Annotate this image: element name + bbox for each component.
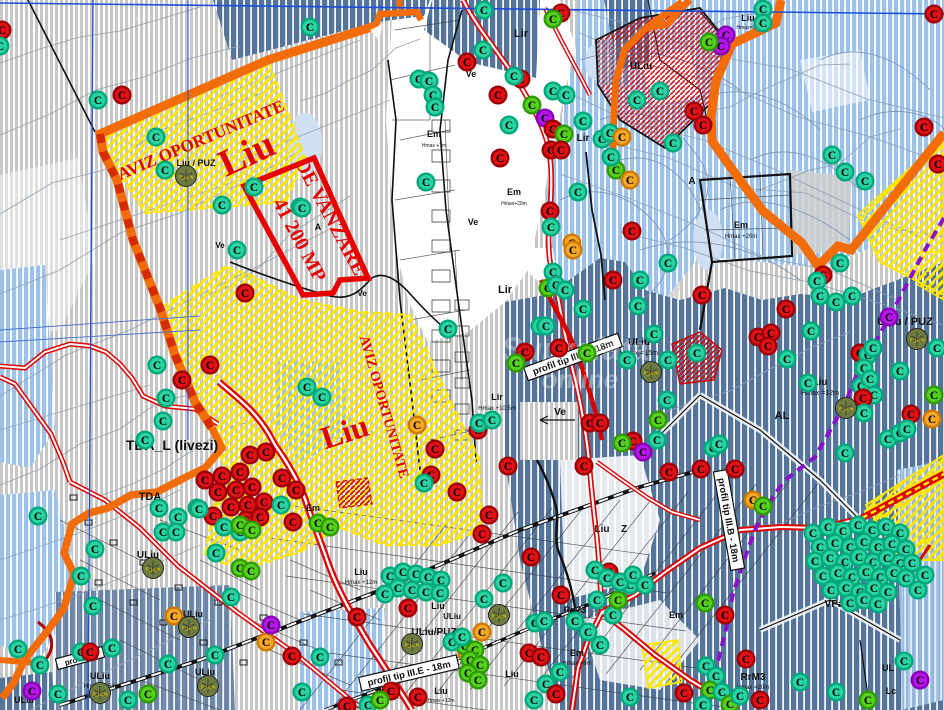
svg-text:C: C — [885, 312, 893, 324]
svg-text:C: C — [152, 132, 160, 144]
svg-text:C: C — [699, 700, 707, 710]
svg-text:C: C — [634, 301, 642, 313]
svg-text:C: C — [431, 444, 439, 456]
svg-text:C: C — [557, 590, 565, 602]
svg-text:C: C — [701, 598, 709, 610]
svg-text:Em: Em — [734, 220, 748, 230]
svg-text:C: C — [289, 517, 297, 529]
svg-text:C: C — [832, 687, 840, 699]
svg-text:C: C — [201, 475, 209, 487]
svg-text:S_ULiu: S_ULiu — [910, 338, 925, 343]
svg-text:C: C — [34, 511, 42, 523]
svg-text:C: C — [742, 654, 750, 666]
svg-text:C: C — [690, 106, 698, 118]
svg-text:C: C — [616, 577, 624, 589]
svg-text:S_ULiu: S_ULiu — [182, 626, 197, 631]
svg-text:Liu: Liu — [505, 669, 519, 679]
svg-text:C: C — [607, 152, 615, 164]
svg-text:C: C — [715, 439, 723, 451]
svg-text:C: C — [831, 538, 839, 550]
svg-text:C: C — [527, 552, 535, 564]
svg-text:C: C — [248, 525, 256, 537]
svg-text:C: C — [431, 102, 439, 114]
svg-text:C: C — [827, 585, 835, 597]
svg-text:C: C — [218, 200, 226, 212]
svg-text:C: C — [0, 41, 4, 53]
svg-text:C: C — [560, 129, 568, 141]
svg-text:C: C — [698, 290, 706, 302]
svg-text:C: C — [896, 366, 904, 378]
svg-text:Hmax +20m: Hmax +20m — [725, 234, 758, 240]
svg-text:C: C — [571, 616, 579, 628]
svg-text:C: C — [609, 275, 617, 287]
svg-text:C: C — [593, 595, 601, 607]
svg-text:C: C — [656, 86, 664, 98]
svg-text:C: C — [557, 145, 565, 157]
svg-text:ULiu: ULiu — [630, 61, 652, 72]
svg-text:C: C — [579, 304, 587, 316]
svg-text:C: C — [584, 627, 592, 639]
svg-text:C: C — [94, 95, 102, 107]
svg-text:C: C — [414, 692, 422, 704]
svg-text:C: C — [848, 291, 856, 303]
svg-text:Lir: Lir — [514, 28, 529, 40]
svg-text:C: C — [77, 571, 85, 583]
svg-text:C: C — [759, 18, 767, 30]
svg-text:C: C — [855, 552, 863, 564]
svg-text:Z: Z — [621, 524, 627, 535]
svg-text:C: C — [596, 640, 604, 652]
svg-text:C: C — [816, 291, 824, 303]
svg-text:C: C — [353, 612, 361, 624]
svg-text:S_ULiu: S_ULiu — [644, 371, 659, 376]
svg-text:C: C — [420, 478, 428, 490]
svg-text:S_ULiu: S_ULiu — [146, 567, 161, 572]
svg-text:Ve: Ve — [357, 289, 367, 298]
svg-text:Em: Em — [427, 129, 441, 139]
svg-text:C: C — [260, 497, 268, 509]
svg-text:C: C — [236, 467, 244, 479]
svg-text:C: C — [900, 656, 908, 668]
svg-text:C: C — [54, 689, 62, 701]
svg-text:C: C — [862, 567, 870, 579]
svg-text:C: C — [807, 326, 815, 338]
svg-text:C: C — [453, 487, 461, 499]
svg-text:C: C — [842, 583, 850, 595]
svg-text:C: C — [463, 57, 471, 69]
svg-text:C: C — [124, 695, 132, 707]
svg-text:C: C — [233, 245, 241, 257]
svg-text:C: C — [826, 553, 834, 565]
svg-text:C: C — [512, 358, 520, 370]
svg-text:C: C — [841, 448, 849, 460]
svg-text:C: C — [316, 652, 324, 664]
svg-text:C: C — [705, 37, 713, 49]
svg-text:C: C — [530, 695, 538, 707]
svg-text:Hmax +?m: Hmax +?m — [422, 143, 446, 149]
svg-text:C: C — [680, 688, 688, 700]
svg-text:C: C — [930, 9, 938, 21]
svg-text:C: C — [141, 435, 149, 447]
svg-text:C: C — [884, 587, 892, 599]
svg-text:C: C — [914, 585, 922, 597]
svg-text:C: C — [494, 90, 502, 102]
svg-text:C: C — [537, 652, 545, 664]
svg-text:C: C — [902, 573, 910, 585]
svg-text:C: C — [903, 424, 911, 436]
svg-text:C: C — [164, 659, 172, 671]
svg-text:C: C — [326, 522, 334, 534]
svg-text:ULiu: ULiu — [90, 671, 110, 681]
svg-text:C: C — [934, 159, 942, 171]
svg-text:C: C — [783, 354, 791, 366]
svg-text:C: C — [89, 601, 97, 613]
svg-text:C: C — [569, 245, 577, 257]
svg-text:C: C — [246, 450, 254, 462]
svg-text:C: C — [628, 226, 636, 238]
svg-text:C: C — [232, 485, 240, 497]
svg-text:C: C — [928, 414, 936, 426]
svg-text:C: C — [250, 182, 258, 194]
svg-text:C: C — [277, 500, 285, 512]
svg-text:C: C — [669, 138, 677, 150]
svg-text:C: C — [399, 567, 407, 579]
svg-text:C: C — [248, 482, 256, 494]
svg-text:C: C — [930, 390, 938, 402]
svg-text:C: C — [650, 329, 658, 341]
svg-text:Liu: Liu — [431, 601, 445, 611]
svg-text:C: C — [479, 45, 487, 57]
svg-text:Lir: Lir — [491, 392, 503, 402]
svg-text:C: C — [288, 651, 296, 663]
svg-text:C: C — [562, 90, 570, 102]
svg-text:C: C — [422, 587, 430, 599]
svg-text:C: C — [623, 355, 631, 367]
svg-text:Ve: Ve — [468, 217, 479, 227]
svg-text:C: C — [574, 187, 582, 199]
svg-text:C: C — [556, 667, 564, 679]
svg-text:C: C — [542, 321, 550, 333]
svg-text:C: C — [874, 599, 882, 611]
svg-text:C: C — [882, 522, 890, 534]
svg-text:C: C — [528, 100, 536, 112]
svg-text:Hmax +10.5m: Hmax +10.5m — [478, 406, 516, 412]
svg-text:A: A — [688, 176, 695, 187]
svg-text:Lc: Lc — [886, 686, 897, 696]
svg-text:C: C — [609, 610, 617, 622]
svg-text:C: C — [36, 660, 44, 672]
svg-text:C: C — [591, 565, 599, 577]
svg-text:C: C — [721, 610, 729, 622]
svg-text:C: C — [859, 393, 867, 405]
svg-text:C: C — [819, 571, 827, 583]
svg-text:C: C — [860, 595, 868, 607]
svg-text:C: C — [665, 467, 673, 479]
svg-text:Ve: Ve — [554, 407, 566, 418]
svg-text:C: C — [654, 415, 662, 427]
svg-text:Lir: Lir — [498, 284, 513, 296]
svg-text:C: C — [267, 620, 275, 632]
svg-text:C: C — [318, 392, 326, 404]
svg-text:C: C — [118, 90, 126, 102]
svg-text:C: C — [699, 120, 707, 132]
svg-text:C: C — [478, 627, 486, 639]
svg-text:C: C — [262, 637, 270, 649]
svg-text:ULiu: ULiu — [443, 612, 461, 621]
svg-text:C: C — [804, 378, 812, 390]
svg-text:C: C — [422, 177, 430, 189]
svg-text:C: C — [480, 594, 488, 606]
svg-text:C: C — [639, 447, 647, 459]
svg-text:C: C — [209, 511, 217, 523]
svg-text:C: C — [860, 537, 868, 549]
svg-text:A: A — [315, 222, 322, 232]
svg-text:C: C — [841, 167, 849, 179]
svg-text:C: C — [824, 522, 832, 534]
svg-text:C: C — [485, 510, 493, 522]
svg-text:C: C — [540, 616, 548, 628]
svg-text:C: C — [155, 503, 163, 515]
svg-text:C: C — [636, 275, 644, 287]
svg-text:S_ULiu: S_ULiu — [179, 175, 194, 180]
svg-text:C: C — [178, 375, 186, 387]
svg-text:C: C — [626, 692, 634, 704]
svg-text:C: C — [14, 644, 22, 656]
svg-text:C: C — [921, 570, 929, 582]
svg-text:C: C — [218, 471, 226, 483]
svg-text:UL: UL — [882, 663, 894, 673]
svg-text:C: C — [108, 643, 116, 655]
svg-text:C: C — [736, 691, 744, 703]
svg-text:C: C — [86, 647, 94, 659]
svg-text:C: C — [306, 22, 314, 34]
svg-text:C: C — [908, 558, 916, 570]
svg-text:C: C — [834, 568, 842, 580]
svg-text:C: C — [916, 675, 924, 687]
svg-text:C: C — [159, 416, 167, 428]
svg-text:S_ULiu: S_ULiu — [201, 685, 216, 690]
svg-text:C: C — [436, 588, 444, 600]
svg-text:C: C — [504, 461, 512, 473]
svg-text:C: C — [220, 522, 228, 534]
svg-text:C: C — [475, 418, 483, 430]
svg-text:C: C — [626, 175, 634, 187]
svg-text:C: C — [343, 701, 351, 710]
svg-text:C: C — [28, 686, 36, 698]
svg-text:C: C — [247, 566, 255, 578]
svg-text:C: C — [278, 473, 286, 485]
svg-text:C: C — [170, 611, 178, 623]
svg-text:C: C — [641, 580, 649, 592]
svg-text:C: C — [756, 695, 764, 707]
svg-text:C: C — [866, 374, 874, 386]
svg-text:C: C — [920, 122, 928, 134]
svg-text:C: C — [854, 520, 862, 532]
svg-text:C: C — [298, 687, 306, 699]
svg-text:C: C — [782, 304, 790, 316]
svg-text:S_ULiu: S_ULiu — [839, 407, 854, 412]
svg-text:Em: Em — [306, 503, 320, 513]
svg-text:C: C — [596, 418, 604, 430]
svg-text:C: C — [478, 529, 486, 541]
svg-text:C: C — [883, 553, 891, 565]
svg-text:C: C — [549, 86, 557, 98]
svg-text:C: C — [828, 150, 836, 162]
svg-text:Ve: Ve — [215, 241, 225, 250]
svg-text:C: C — [195, 504, 203, 516]
svg-text:C: C — [618, 438, 626, 450]
svg-text:C: C — [861, 176, 869, 188]
svg-text:C: C — [580, 461, 588, 473]
svg-text:RrM3: RrM3 — [740, 672, 765, 683]
svg-text:C: C — [869, 343, 877, 355]
svg-text:Em: Em — [507, 187, 521, 197]
svg-text:C: C — [614, 595, 622, 607]
svg-text:Em: Em — [669, 610, 683, 620]
svg-text:C: C — [583, 348, 591, 360]
svg-text:C: C — [292, 485, 300, 497]
svg-text:C: C — [376, 695, 384, 707]
svg-text:C: C — [159, 527, 167, 539]
svg-text:C: C — [162, 393, 170, 405]
svg-text:C: C — [424, 572, 432, 584]
svg-text:Lir: Lir — [577, 133, 590, 144]
svg-text:C: C — [693, 348, 701, 360]
svg-text:C: C — [227, 502, 235, 514]
svg-text:C: C — [731, 464, 739, 476]
svg-text:C: C — [244, 500, 252, 512]
svg-text:C: C — [0, 25, 6, 37]
svg-text:C: C — [444, 324, 452, 336]
svg-text:C: C — [381, 589, 389, 601]
svg-text:Hmax+20m: Hmax+20m — [501, 201, 527, 207]
svg-text:C: C — [212, 548, 220, 560]
svg-text:C: C — [241, 288, 249, 300]
svg-text:C: C — [214, 487, 222, 499]
svg-text:AL: AL — [775, 410, 790, 422]
svg-text:C: C — [633, 95, 641, 107]
svg-text:C: C — [546, 206, 554, 218]
svg-text:C: C — [404, 603, 412, 615]
svg-text:C: C — [759, 501, 767, 513]
svg-text:C: C — [836, 258, 844, 270]
svg-text:C: C — [488, 415, 496, 427]
svg-text:C: C — [618, 132, 626, 144]
svg-text:online: online — [542, 364, 619, 394]
svg-text:C: C — [664, 355, 672, 367]
svg-text:C: C — [697, 464, 705, 476]
svg-text:C: C — [505, 120, 513, 132]
svg-text:Liu: Liu — [354, 567, 368, 577]
svg-text:C: C — [298, 203, 306, 215]
svg-text:C: C — [144, 689, 152, 701]
svg-text:C: C — [153, 360, 161, 372]
svg-text:C: C — [579, 116, 587, 128]
svg-text:C: C — [547, 222, 555, 234]
svg-text:C: C — [549, 14, 557, 26]
svg-text:C: C — [476, 660, 484, 672]
svg-text:C: C — [796, 677, 804, 689]
svg-text:C: C — [211, 650, 219, 662]
svg-text:C: C — [474, 675, 482, 687]
svg-text:C: C — [864, 695, 872, 707]
svg-text:C: C — [555, 343, 563, 355]
svg-text:S_ULiu: S_ULiu — [93, 692, 108, 697]
svg-text:C: C — [907, 409, 915, 421]
svg-text:C: C — [262, 447, 270, 459]
svg-text:C: C — [408, 585, 416, 597]
svg-text:C: C — [499, 578, 507, 590]
svg-text:C: C — [860, 408, 868, 420]
svg-text:Hmax +12m: Hmax +12m — [427, 698, 454, 704]
svg-text:Liu: Liu — [595, 524, 610, 535]
svg-text:C: C — [561, 285, 569, 297]
svg-text:C: C — [811, 556, 819, 568]
svg-text:C: C — [603, 573, 611, 585]
svg-text:S_ULiu: S_ULiu — [405, 643, 420, 648]
svg-text:C: C — [664, 258, 672, 270]
svg-text:C: C — [884, 434, 892, 446]
svg-text:S_ULiu: S_ULiu — [492, 614, 507, 619]
svg-text:C: C — [174, 512, 182, 524]
svg-text:C: C — [206, 360, 214, 372]
svg-text:Hmax +12m: Hmax +12m — [345, 580, 378, 586]
svg-text:C: C — [846, 598, 854, 610]
svg-text:C: C — [161, 165, 169, 177]
svg-text:C: C — [227, 592, 235, 604]
svg-text:C: C — [612, 165, 620, 177]
svg-text:C: C — [653, 435, 661, 447]
svg-text:C: C — [303, 382, 311, 394]
svg-text:C: C — [413, 420, 421, 432]
svg-text:C: C — [510, 71, 518, 83]
svg-text:Liu: Liu — [434, 686, 448, 696]
svg-text:C: C — [91, 544, 99, 556]
svg-text:C: C — [172, 527, 180, 539]
svg-text:C: C — [496, 153, 504, 165]
svg-text:C: C — [480, 5, 488, 17]
svg-text:C: C — [764, 341, 772, 353]
svg-text:Liu: Liu — [741, 13, 755, 23]
svg-text:C: C — [458, 632, 466, 644]
svg-text:C: C — [870, 583, 878, 595]
svg-text:C: C — [933, 343, 941, 355]
svg-text:C: C — [629, 570, 637, 582]
svg-text:C: C — [832, 297, 840, 309]
svg-text:Em: Em — [570, 648, 584, 658]
svg-text:C: C — [552, 689, 560, 701]
svg-text:C: C — [663, 395, 671, 407]
svg-text:C: C — [809, 528, 817, 540]
svg-text:C: C — [394, 583, 402, 595]
svg-text:C: C — [813, 276, 821, 288]
